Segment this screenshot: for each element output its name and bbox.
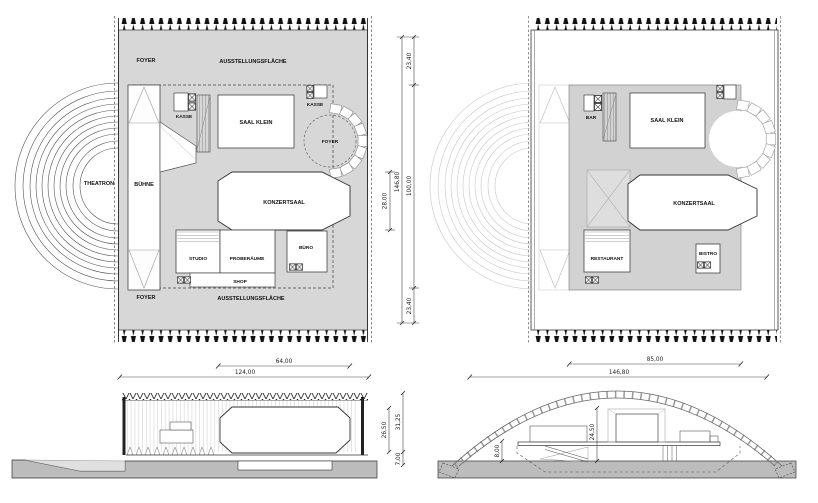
label-foyer-round: FOYER — [322, 139, 339, 145]
label-foyer-bottom: FOYER — [137, 295, 156, 301]
label-bistro: BISTRO — [699, 251, 717, 257]
dim-total-height: 146,80 — [395, 172, 401, 193]
plan-right-teeth-top — [532, 18, 777, 30]
label-restaurant: RESTAURANT — [591, 256, 624, 262]
plan-left-teeth-bottom — [119, 330, 367, 342]
label-bar: BAR — [586, 115, 597, 121]
escalator-icon — [289, 264, 295, 270]
floor-slab — [518, 442, 720, 446]
dim-inner-height: 24,50 — [590, 423, 596, 440]
end-column-right — [361, 397, 364, 455]
label-saal-klein: SAAL KLEIN — [240, 120, 273, 126]
bar-room — [584, 95, 594, 111]
label-exhibition-top: AUSSTELLUNGSFLÄCHE — [219, 58, 287, 65]
escalator-icon — [717, 85, 723, 91]
dim-total-width-right: 146,80 — [609, 370, 630, 376]
escalator-icon — [585, 277, 591, 283]
label-buehne: BÜHNE — [134, 181, 154, 188]
escalator-icon — [307, 92, 313, 98]
floor-plan-left: THEATRON FOYER AUSSTELLUNGSFLÄCHE FOYER … — [15, 16, 419, 380]
architectural-drawing: THEATRON FOYER AUSSTELLUNGSFLÄCHE FOYER … — [0, 0, 818, 503]
dim-inner-width-right: 85,00 — [647, 357, 664, 363]
escalator-icon — [717, 92, 723, 98]
section-right: 24,50 8,00 — [438, 391, 796, 478]
dim-below-ground: 7,00 — [396, 452, 402, 465]
kiosk-room — [724, 85, 736, 99]
escalator-icon — [307, 85, 313, 91]
label-shop: SHOP — [233, 279, 247, 285]
label-exhibition-bottom: AUSSTELLUNGSFLÄCHE — [217, 295, 285, 302]
dim-base-height: 8,00 — [495, 444, 501, 457]
dim-seg-top: 23,40 — [407, 52, 413, 69]
theatron-arcs-faint — [430, 83, 533, 289]
label-kasse-right: KASSE — [307, 102, 324, 108]
escalator-icon — [296, 264, 302, 270]
floor-plan-right: BAR SAAL KLEIN — [430, 16, 781, 380]
escalator-icon — [594, 95, 601, 102]
escalator-icon — [188, 94, 195, 101]
label-saal-klein-right: SAAL KLEIN — [651, 118, 684, 124]
dim-hall-height: 28,00 — [383, 192, 389, 209]
tower-inner — [616, 414, 658, 442]
section-right-dims: 24,50 8,00 — [495, 406, 599, 463]
stair-landing — [160, 430, 193, 443]
label-studio: STUDIO — [189, 256, 207, 262]
dim-total-height-section: 31,25 — [396, 413, 402, 430]
drawing-canvas: THEATRON FOYER AUSSTELLUNGSFLÄCHE FOYER … — [0, 0, 818, 503]
plan-left-width-dims: 64,00 124,00 — [118, 359, 372, 380]
arch-outer — [452, 391, 782, 466]
escalator-icon — [177, 277, 183, 283]
basement-pit — [238, 461, 332, 470]
plan-right-width-dims: 85,00 146,80 — [468, 357, 770, 380]
volume-right-small — [710, 436, 718, 442]
restaurant-stair-hatch — [585, 231, 629, 243]
label-proberaeume: PROBERÄUME — [230, 255, 265, 262]
arch-segments — [456, 395, 779, 467]
dim-above-ground: 26,50 — [382, 421, 388, 438]
escalator-icon — [594, 103, 601, 110]
bistro-room — [696, 244, 720, 273]
label-konzertsaal-right: KONZERTSAAL — [673, 201, 715, 207]
label-foyer-top: FOYER — [137, 58, 156, 64]
konzertsaal-section — [220, 407, 350, 453]
plan-right-teeth-bottom — [532, 330, 777, 342]
label-buero: BÜRO — [299, 244, 313, 251]
stair-landing-upper — [170, 422, 191, 430]
escalator-icon — [592, 277, 598, 283]
ground — [438, 461, 796, 478]
kasse-right-room — [314, 85, 327, 98]
label-theatron: THEATRON — [84, 181, 114, 187]
volume-left — [530, 426, 587, 442]
label-kasse-left: KASSE — [176, 114, 193, 120]
escalator-icon — [184, 277, 190, 283]
plan-left-height-dims: 28,00 146,80 23,40 100,00 23,40 — [383, 35, 420, 325]
roof-zigzag — [122, 393, 368, 400]
dim-total-width: 124,00 — [235, 370, 256, 376]
volume-right — [680, 431, 710, 442]
studio-stair-hatch — [177, 231, 219, 243]
label-konzertsaal: KONZERTSAAL — [263, 200, 305, 206]
arch-inner — [459, 398, 775, 466]
kasse-left-room — [174, 93, 188, 111]
escalator-icon — [697, 262, 703, 268]
dim-seg-bottom: 23,40 — [407, 297, 413, 314]
dim-seg-mid: 100,00 — [407, 176, 413, 197]
dim-inner-width: 64,00 — [276, 359, 293, 365]
plan-left-teeth-top — [119, 18, 367, 30]
proberaeume-room — [220, 230, 275, 273]
end-column-left — [123, 397, 126, 455]
section-left-dims: 26,50 31,25 7,00 — [382, 391, 405, 467]
escalator-icon — [704, 262, 710, 268]
section-left: 26,50 31,25 7,00 — [12, 391, 405, 478]
escalator-icon — [188, 103, 195, 110]
